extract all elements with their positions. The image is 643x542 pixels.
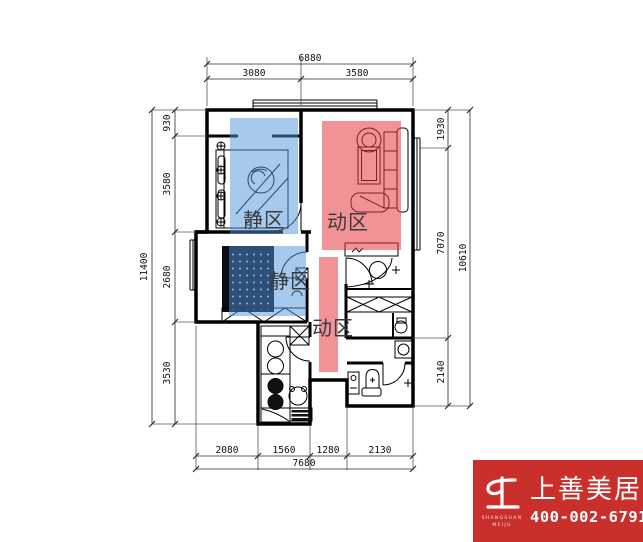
brand-logo: SHANGSHAN MEIJU 上善美居 400-002-6791 — [473, 460, 643, 542]
dim-bottom-seg0: 2080 — [216, 445, 239, 456]
label-active-living: 动区 — [327, 210, 369, 234]
dim-left-total: 11400 — [139, 252, 150, 281]
stove-burner-1 — [268, 379, 283, 394]
wardrobe-bath — [347, 297, 412, 312]
door-bath2 — [383, 363, 405, 385]
logo-latin-text: SHANGSHAN MEIJU — [482, 516, 523, 530]
dim-left-seg1: 3580 — [162, 172, 173, 195]
sink-bowl-1 — [268, 341, 284, 357]
door-bath1 — [346, 258, 372, 284]
drain-box-x — [290, 326, 309, 345]
toilet-tank — [362, 388, 381, 396]
bath-fixtures — [347, 258, 412, 396]
dim-right: 1930 7070 2140 10610 — [413, 107, 473, 409]
bath2-sink-drain — [351, 376, 356, 381]
active-zone-corridor — [319, 257, 338, 372]
appliance-stripe-2 — [292, 414, 311, 417]
dim-top-seg0: 3080 — [243, 68, 266, 79]
stove-burner-2 — [268, 395, 283, 410]
counter-corner — [262, 409, 289, 421]
dim-left-seg2: 2680 — [162, 265, 173, 288]
logo-latin-line2: MEIJU — [492, 523, 511, 530]
shangshan-logo-icon — [481, 472, 523, 514]
bath2-wall-valve — [404, 379, 412, 387]
dim-right-total: 10610 — [458, 243, 469, 272]
dim-bottom-seg2: 1280 — [317, 445, 340, 456]
basin-faucet — [392, 266, 400, 274]
label-active-corridor: 动区 — [312, 316, 354, 340]
floorplan-page: 静区 动区 静区 动区 6880 3080 3580 2080 1560 128… — [0, 0, 643, 542]
label-quiet-bedroom1: 静区 — [243, 208, 285, 232]
dim-right-seg2: 2140 — [436, 360, 447, 383]
dim-bottom-seg1: 1560 — [273, 445, 296, 456]
dim-top-total: 6880 — [299, 53, 322, 64]
dim-top: 6880 3080 3580 — [204, 53, 416, 106]
sink-bowl-2 — [268, 358, 284, 374]
basin — [370, 262, 387, 279]
logo-text-column: 上善美居 400-002-6791 — [530, 476, 643, 526]
dim-right-seg1: 7070 — [436, 231, 447, 254]
dim-left-seg3: 3530 — [162, 361, 173, 384]
brand-name: 上善美居 — [530, 476, 643, 505]
logo-mark-column: SHANGSHAN MEIJU — [481, 472, 523, 530]
dim-top-seg1: 3580 — [346, 68, 369, 79]
dim-left-seg0: 930 — [162, 114, 173, 131]
dim-bottom: 2080 1560 1280 2130 7680 — [193, 326, 416, 472]
wardrobe-bath-x — [347, 297, 412, 312]
logo-latin-line1: SHANGSHAN — [482, 516, 523, 523]
brand-phone: 400-002-6791 — [530, 508, 643, 526]
water-heater — [289, 387, 307, 405]
toilet-mark — [370, 378, 375, 383]
appliance-stripe-3 — [292, 418, 311, 421]
label-quiet-bedroom2: 静区 — [269, 269, 311, 293]
dim-bottom-seg3: 2130 — [369, 445, 392, 456]
appliance-stripe-1 — [292, 410, 311, 413]
dim-bottom-total: 7680 — [293, 458, 316, 469]
washing-machine-drum — [398, 344, 409, 355]
dim-right-seg0: 1930 — [436, 117, 447, 140]
